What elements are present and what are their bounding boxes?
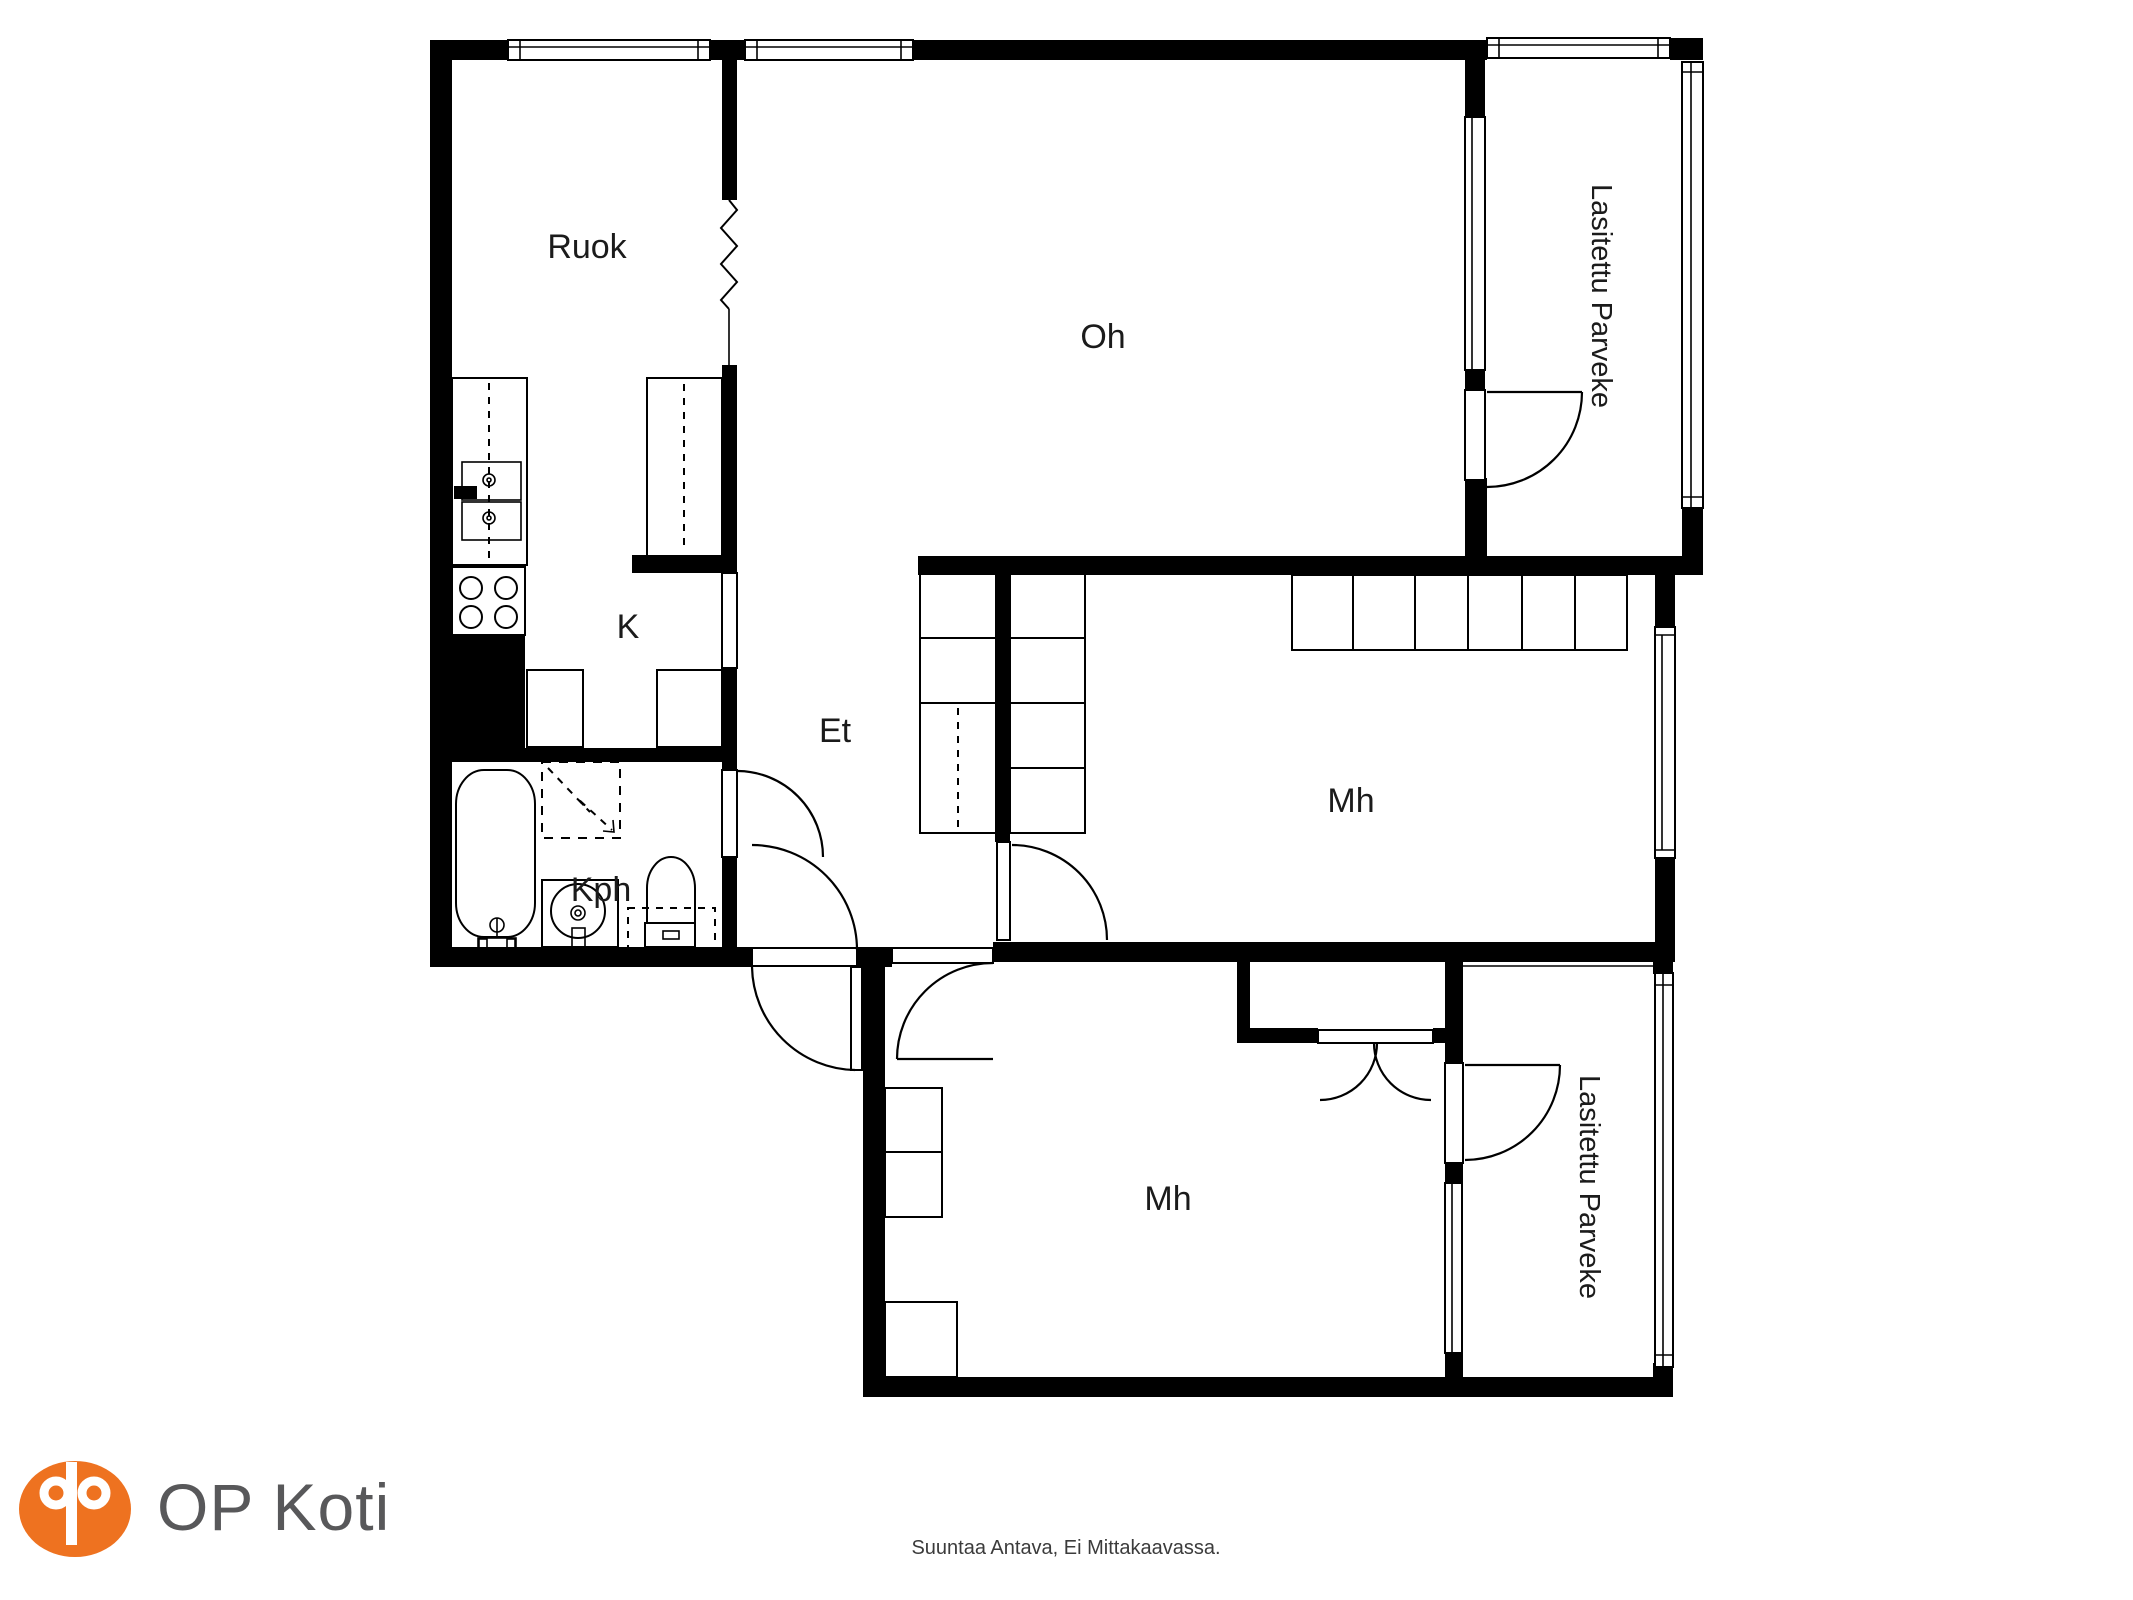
kitchen-appliance-right (657, 670, 722, 747)
shower-area (542, 762, 620, 838)
footer: OP Koti Suuntaa Antava, Ei Mittakaavassa… (19, 1461, 1221, 1559)
window-bedroom-bottom-balcony (1445, 1183, 1462, 1353)
wardrobe-bedroom-bottom (885, 1088, 957, 1377)
kitchen-appliance-left (527, 670, 583, 747)
sink-faucet (454, 486, 477, 499)
disclaimer-text: Suuntaa Antava, Ei Mittakaavassa. (911, 1537, 1220, 1559)
toilet (628, 857, 715, 948)
window-living-balcony (1465, 117, 1485, 370)
label-bathroom: Kph (571, 871, 632, 909)
op-logo-icon (19, 1461, 131, 1557)
door-balcony-bottom (1445, 1063, 1560, 1163)
glazing-balcony-top-east (1682, 62, 1703, 508)
floorplan-drawing: Ruok Oh K Et Kph Mh Mh Lasitettu Parveke… (0, 0, 2133, 1600)
label-balcony-top: Lasitettu Parveke (1585, 184, 1617, 408)
door-entry (752, 845, 862, 1070)
windows (508, 38, 1703, 1367)
kitchen-cabinet-tall (647, 378, 722, 557)
door-bathroom (722, 770, 823, 857)
closet-bedroom-column (1010, 572, 1085, 833)
kitchen-stove (452, 567, 525, 635)
door-balcony-top (1465, 390, 1582, 487)
label-dining: Ruok (547, 228, 627, 266)
label-balcony-bottom: Lasitettu Parveke (1573, 1075, 1605, 1299)
glazing-balcony-bottom-east (1655, 973, 1673, 1367)
label-kitchen: K (617, 608, 640, 646)
window-dining (508, 40, 710, 60)
bathtub (456, 770, 535, 949)
label-bedroom-right: Mh (1327, 782, 1374, 820)
window-living (745, 40, 913, 60)
zigzag-opening (721, 200, 737, 365)
door-bedroom-bottom (892, 948, 993, 1059)
closets (885, 572, 1627, 1377)
op-logo-text: OP Koti (157, 1470, 390, 1544)
door-bedroom-right (997, 842, 1107, 940)
closet-entry-column (920, 572, 997, 833)
bathroom-fixtures (456, 762, 715, 949)
door-closet-double (1318, 1030, 1433, 1100)
label-living: Oh (1080, 318, 1125, 356)
label-bedroom-bottom: Mh (1144, 1180, 1191, 1218)
kitchen-counter-sink (452, 378, 527, 565)
window-balcony-top-north (1487, 38, 1670, 58)
wardrobe-row-bedroom-right (1292, 575, 1627, 650)
floorplan-page: Ruok Oh K Et Kph Mh Mh Lasitettu Parveke… (0, 0, 2133, 1600)
label-entry: Et (819, 712, 852, 750)
opening-kitchen-entry (722, 573, 737, 668)
window-bedroom-right (1655, 627, 1675, 858)
